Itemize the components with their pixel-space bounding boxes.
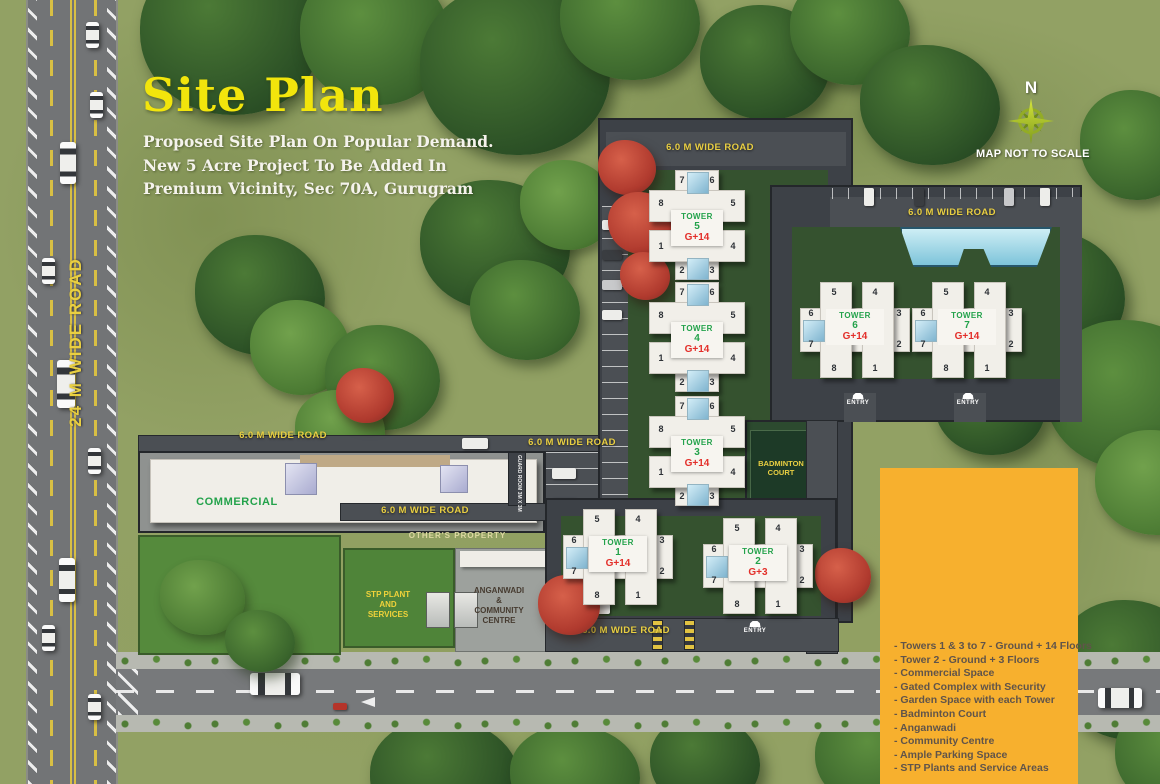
unit-number: 4: [872, 287, 877, 297]
page-title: Site Plan: [142, 68, 384, 122]
unit-number: 7: [679, 287, 684, 297]
badminton-line: COURT: [747, 468, 815, 477]
east-side-road: [1060, 197, 1082, 422]
commercial-label: COMMERCIAL: [177, 496, 297, 508]
glass-panel: [687, 370, 709, 392]
unit-number: 8: [658, 424, 663, 434]
unit-number: 5: [734, 523, 739, 533]
unit-number: 5: [730, 198, 735, 208]
tower-floors: G+14: [938, 331, 996, 343]
tree: [225, 610, 295, 672]
tower-floors: G+14: [671, 344, 723, 356]
vehicle: [602, 250, 622, 260]
unit-number: 4: [730, 241, 735, 251]
glass-panel: [687, 172, 709, 194]
tower-name: TOWER: [729, 547, 787, 556]
vehicle: [462, 438, 488, 449]
glass-cube: [285, 463, 317, 495]
unit-number: 8: [943, 363, 948, 373]
unit-number: 2: [1008, 339, 1013, 349]
legend-panel: - Towers 1 & 3 to 7 - Ground + 14 Floors…: [880, 468, 1078, 784]
unit-number: 1: [658, 241, 663, 251]
unit-number: 2: [679, 265, 684, 275]
tree: [510, 725, 640, 784]
entry-label: ENTRY: [950, 393, 986, 406]
entry-label: ENTRY: [737, 621, 773, 634]
stp-line: AND: [348, 600, 428, 610]
vehicle: [552, 468, 576, 479]
tower-number: 1: [589, 547, 647, 558]
compass-rose-icon: [1008, 98, 1054, 144]
page-subtitle: Proposed Site Plan On Popular Demand. Ne…: [143, 130, 494, 201]
unit-number: 3: [709, 377, 714, 387]
unit-number: 8: [831, 363, 836, 373]
unit-number: 7: [920, 339, 925, 349]
unit-number: 3: [1008, 308, 1013, 318]
badminton-line: BADMINTON: [747, 459, 815, 468]
tower-number: 6: [826, 320, 884, 331]
vehicle: [90, 92, 103, 118]
compass-north-label: N: [1000, 78, 1062, 98]
legend-item: - Commercial Space: [894, 667, 1070, 681]
vehicle: [602, 310, 622, 320]
unit-number: 5: [594, 514, 599, 524]
red-tree: [598, 140, 656, 195]
unit-number: 6: [920, 308, 925, 318]
unit-number: 8: [594, 590, 599, 600]
legend-item: - STP Plants and Service Areas: [894, 762, 1070, 776]
red-tree: [336, 368, 394, 423]
unit-number: 7: [711, 575, 716, 585]
unit-number: 6: [709, 401, 714, 411]
tower-name: TOWER: [589, 538, 647, 547]
vehicle: [88, 448, 101, 474]
tower-5-label: TOWER 5 G+14: [671, 210, 723, 246]
legend-item: - Ample Parking Space: [894, 749, 1070, 763]
unit-number: 6: [808, 308, 813, 318]
unit-number: 7: [679, 175, 684, 185]
unit-number: 7: [571, 566, 576, 576]
compass-cardinal-points: [1008, 98, 1054, 144]
stp-equipment: [426, 592, 450, 628]
anganwadi-label: ANGANWADI & COMMUNITY CENTRE: [455, 586, 543, 626]
vehicle: [602, 280, 622, 290]
unit-number: 3: [709, 491, 714, 501]
tower-floors: G+14: [826, 331, 884, 343]
tower-name: TOWER: [671, 212, 723, 221]
unit-number: 8: [658, 198, 663, 208]
legend-item: - Towers 1 & 3 to 7 - Ground + 14 Floors: [894, 640, 1070, 654]
tower-floors: G+14: [671, 232, 723, 244]
glass-panel: [915, 320, 937, 342]
tower-name: TOWER: [826, 311, 884, 320]
unit-number: 2: [679, 377, 684, 387]
vehicle: [250, 673, 300, 695]
vehicle: [864, 188, 874, 206]
others-property-label: OTHER'S PROPERTY: [390, 531, 525, 540]
tower-6-building: 5 4 6 3 7 2 8 1 TOWER 6 G+14: [800, 282, 910, 378]
unit-number: 3: [709, 265, 714, 275]
subtitle-line: Proposed Site Plan On Popular Demand.: [143, 130, 494, 154]
tower-7-label: TOWER 7 G+14: [938, 309, 996, 345]
unit-number: 5: [943, 287, 948, 297]
unit-number: 8: [658, 310, 663, 320]
vehicle: [88, 694, 101, 720]
internal-road-label: 6.0 M WIDE ROAD: [223, 430, 343, 441]
glass-panel: [687, 284, 709, 306]
unit-number: 2: [799, 575, 804, 585]
site-plan-canvas: 24 M WIDE ROAD COMMERCIAL GUARD ROOM 3M …: [0, 0, 1160, 784]
tower-name: TOWER: [938, 311, 996, 320]
entry-text: ENTRY: [847, 400, 870, 406]
tower-4-label: TOWER 4 G+14: [671, 322, 723, 358]
vehicle: [333, 703, 347, 710]
unit-number: 5: [730, 424, 735, 434]
tower-floors: G+14: [589, 558, 647, 570]
unit-number: 4: [984, 287, 989, 297]
entry-gate: [684, 620, 695, 650]
glass-panel: [706, 556, 728, 578]
anganwadi-line: &: [455, 596, 543, 606]
unit-number: 7: [679, 401, 684, 411]
unit-number: 1: [658, 467, 663, 477]
unit-number: 4: [730, 467, 735, 477]
anganwadi-line: COMMUNITY: [455, 606, 543, 616]
commercial-roof-band: [300, 455, 450, 467]
internal-road-label: 6.0 M WIDE ROAD: [892, 207, 1012, 218]
lane-line: [50, 0, 53, 784]
unit-number: 4: [730, 353, 735, 363]
tower-number: 5: [671, 221, 723, 232]
vehicle: [42, 625, 55, 651]
subtitle-line: Premium Vicinity, Sec 70A, Gurugram: [143, 177, 494, 201]
unit-number: 6: [709, 287, 714, 297]
vehicle: [86, 22, 99, 48]
tower-number: 4: [671, 333, 723, 344]
unit-number: 3: [799, 544, 804, 554]
anganwadi-line: CENTRE: [455, 616, 543, 626]
car-icon: [960, 393, 976, 399]
glass-panel: [687, 258, 709, 280]
glass-panel: [803, 320, 825, 342]
unit-number: 3: [896, 308, 901, 318]
tower-3-building: 7 6 8 5 1 4 2 3 TOWER 3 G+14: [649, 396, 745, 506]
guard-room: GUARD ROOM 3M X 3M: [508, 452, 526, 506]
guard-room-label: GUARD ROOM 3M X 3M: [516, 455, 522, 512]
stp-label: STP PLANT AND SERVICES: [348, 590, 428, 620]
map-scale-note: MAP NOT TO SCALE: [976, 148, 1090, 160]
stp-line: STP PLANT: [348, 590, 428, 600]
glass-panel: [687, 398, 709, 420]
entry-text: ENTRY: [744, 628, 767, 634]
tower-6-label: TOWER 6 G+14: [826, 309, 884, 345]
unit-number: 2: [896, 339, 901, 349]
car-icon: [850, 393, 866, 399]
tower-floors: G+3: [729, 567, 787, 579]
tower-1-building: 5 4 6 3 7 2 8 1 TOWER 1 G+14: [563, 509, 673, 605]
compass: N: [1000, 78, 1062, 144]
unit-number: 1: [984, 363, 989, 373]
unit-number: 2: [679, 491, 684, 501]
vehicle: [1040, 188, 1050, 206]
vehicle: [42, 258, 55, 284]
unit-number: 3: [659, 535, 664, 545]
stp-line: SERVICES: [348, 610, 428, 620]
vehicle: [59, 558, 75, 602]
road-arrow-marking: [356, 697, 375, 707]
legend-item: - Garden Space with each Tower: [894, 694, 1070, 708]
tree: [860, 45, 1000, 165]
tower-4-building: 7 6 8 5 1 4 2 3 TOWER 4 G+14: [649, 282, 745, 392]
tower-7-building: 5 4 6 3 7 2 8 1 TOWER 7 G+14: [912, 282, 1022, 378]
unit-number: 7: [808, 339, 813, 349]
unit-number: 5: [831, 287, 836, 297]
unit-number: 1: [872, 363, 877, 373]
tower-2-building: 5 4 6 3 7 2 8 1 TOWER 2 G+3: [703, 518, 813, 614]
tower-2-label: TOWER 2 G+3: [729, 545, 787, 581]
tower-number: 3: [671, 447, 723, 458]
tower-floors: G+14: [671, 458, 723, 470]
unit-number: 6: [709, 175, 714, 185]
red-tree: [815, 548, 871, 603]
subtitle-line: New 5 Acre Project To Be Added In: [143, 154, 494, 178]
anganwadi-line: ANGANWADI: [455, 586, 543, 596]
internal-road-label: 6.0 M WIDE ROAD: [513, 437, 631, 448]
internal-road-label: 6.0 M WIDE ROAD: [365, 505, 485, 516]
entry-text: ENTRY: [957, 400, 980, 406]
tree: [470, 260, 580, 360]
vehicle: [1098, 688, 1142, 708]
main-road-label: 24 M WIDE ROAD: [66, 247, 86, 437]
tower-number: 2: [729, 556, 787, 567]
tower-1-label: TOWER 1 G+14: [589, 536, 647, 572]
crossing: [118, 669, 138, 715]
glass-cube: [440, 465, 468, 493]
legend-item: - Tower 2 - Ground + 3 Floors: [894, 654, 1070, 668]
car-icon: [747, 621, 763, 627]
unit-number: 4: [775, 523, 780, 533]
unit-number: 4: [635, 514, 640, 524]
vehicle: [60, 142, 76, 184]
unit-number: 6: [571, 535, 576, 545]
road-edge-marking: [28, 0, 37, 784]
tower-number: 7: [938, 320, 996, 331]
unit-number: 2: [659, 566, 664, 576]
entry-label: ENTRY: [840, 393, 876, 406]
glass-panel: [566, 547, 588, 569]
tower-name: TOWER: [671, 324, 723, 333]
tower-name: TOWER: [671, 438, 723, 447]
glass-panel: [687, 484, 709, 506]
unit-number: 8: [734, 599, 739, 609]
vehicle: [1004, 188, 1014, 206]
unit-number: 1: [775, 599, 780, 609]
legend-item: - Community Centre: [894, 735, 1070, 749]
unit-number: 1: [635, 590, 640, 600]
legend-item: - Badminton Court: [894, 708, 1070, 722]
unit-number: 1: [658, 353, 663, 363]
road-edge-marking: [107, 0, 116, 784]
legend-item: - Gated Complex with Security: [894, 681, 1070, 695]
tower-3-label: TOWER 3 G+14: [671, 436, 723, 472]
tree: [1080, 90, 1160, 200]
tower-5-building: 7 6 8 5 1 4 2 3 TOWER 5 G+14: [649, 170, 745, 280]
vehicle: [914, 188, 924, 206]
unit-number: 5: [730, 310, 735, 320]
internal-road-label: 6.0 M WIDE ROAD: [650, 142, 770, 153]
legend-item: - Anganwadi: [894, 722, 1070, 736]
unit-number: 6: [711, 544, 716, 554]
badminton-label: BADMINTON COURT: [747, 459, 815, 477]
